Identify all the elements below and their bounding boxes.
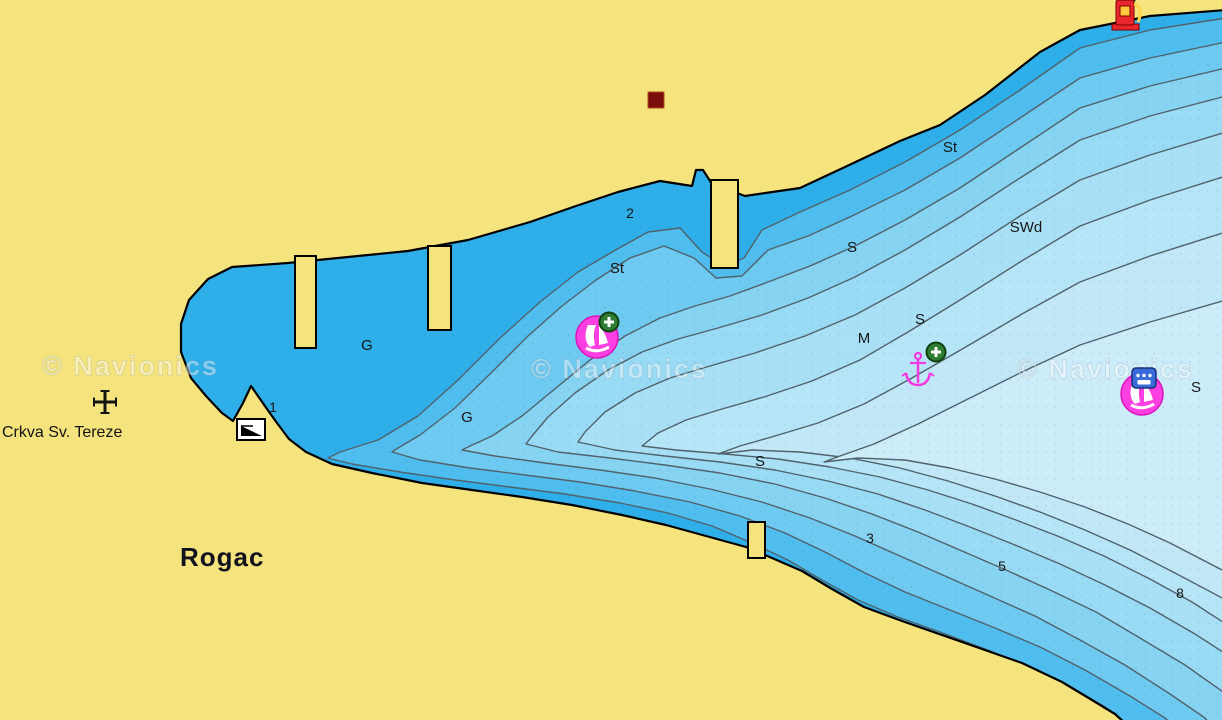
seabed-label: S bbox=[1191, 379, 1201, 396]
depth-label: 3 bbox=[866, 530, 874, 546]
seabed-label: St bbox=[610, 260, 625, 277]
seabed-label: G bbox=[361, 337, 373, 354]
town-name-label: Rogac bbox=[180, 542, 264, 572]
boat-ramp-icon bbox=[237, 419, 265, 440]
pier-middle bbox=[428, 246, 451, 330]
watermark-right: © Navionics bbox=[1017, 354, 1194, 384]
watermark-center: © Navionics bbox=[531, 354, 708, 384]
chart-viewport[interactable]: © Navionics © Navionics © Navionics bbox=[0, 0, 1222, 720]
pier-west bbox=[295, 256, 316, 348]
chat-badge-icon[interactable] bbox=[1132, 368, 1156, 388]
watermark-left: © Navionics bbox=[42, 351, 219, 381]
depth-label: 2 bbox=[626, 205, 634, 221]
seabed-label: S bbox=[755, 453, 765, 470]
seabed-label: S bbox=[915, 311, 925, 328]
depth-label: 8 bbox=[1176, 585, 1184, 601]
depth-label: 5 bbox=[998, 558, 1006, 574]
pier-east bbox=[711, 180, 738, 268]
building-square-icon bbox=[648, 92, 664, 108]
seabed-label: S bbox=[847, 239, 857, 256]
seabed-label: St bbox=[943, 139, 958, 156]
seabed-label: M bbox=[858, 330, 871, 347]
depth-label: 1 bbox=[269, 399, 277, 415]
seabed-label: SWd bbox=[1010, 219, 1043, 236]
pier-south bbox=[748, 522, 765, 558]
map-canvas[interactable]: © Navionics © Navionics © Navionics bbox=[0, 0, 1222, 720]
poi-plus-anchorage-icon[interactable] bbox=[927, 343, 946, 362]
church-name-label: Crkva Sv. Tereze bbox=[2, 424, 122, 441]
seabed-label: G bbox=[461, 409, 473, 426]
poi-plus-west-icon[interactable] bbox=[600, 313, 619, 332]
